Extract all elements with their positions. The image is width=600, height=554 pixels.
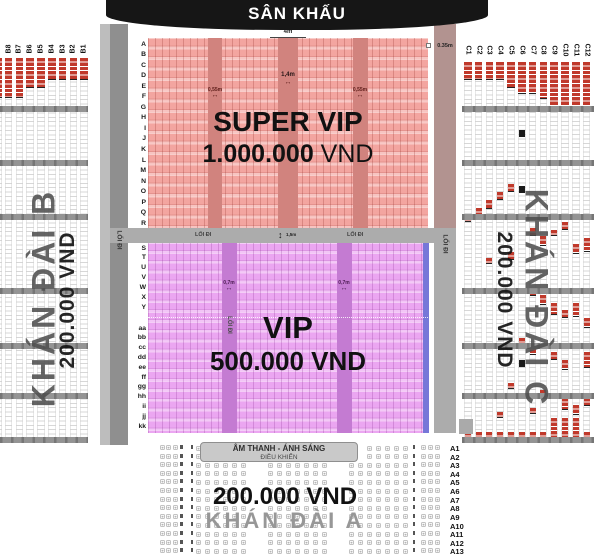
seat xyxy=(160,531,165,536)
seat xyxy=(205,471,210,476)
vip-row-label: Y xyxy=(130,304,146,312)
seat xyxy=(428,514,433,519)
seat xyxy=(421,505,426,510)
stand-seat-column xyxy=(475,62,483,443)
row-number-mark xyxy=(413,454,416,458)
seat xyxy=(367,549,372,554)
sold-seat-mark xyxy=(573,303,579,317)
seat xyxy=(322,463,327,468)
vip-row-label: jj xyxy=(130,413,146,421)
seat xyxy=(286,540,291,545)
svip-row-label: C xyxy=(130,62,146,70)
dim-right-square xyxy=(426,43,431,48)
seat xyxy=(232,549,237,554)
seat xyxy=(376,454,381,459)
row-number-mark xyxy=(191,471,194,475)
seat xyxy=(421,540,426,545)
seat xyxy=(166,454,171,459)
stand-column-label: C5 xyxy=(508,46,515,55)
stand-walkway-bar xyxy=(0,437,88,443)
vip-row-label: V xyxy=(130,274,146,282)
seat xyxy=(394,540,399,545)
seat xyxy=(166,548,171,553)
stand-seat-column xyxy=(5,58,13,443)
seat xyxy=(268,549,273,554)
seat xyxy=(349,549,354,554)
stand-walkway-bar xyxy=(0,106,88,112)
width-arrow-icon: ↔ xyxy=(329,286,359,292)
seat xyxy=(173,454,178,459)
seat xyxy=(394,480,399,485)
super-vip-price-currency: VND xyxy=(314,140,374,168)
seat xyxy=(421,445,426,450)
seat xyxy=(173,471,178,476)
seat xyxy=(367,463,372,468)
sold-seat-mark xyxy=(486,200,492,209)
seat xyxy=(367,446,372,451)
stand-column-label: C8 xyxy=(540,46,547,55)
seat xyxy=(313,540,318,545)
seat xyxy=(428,540,433,545)
sold-seat-mark xyxy=(584,238,590,252)
seat xyxy=(428,445,433,450)
seat xyxy=(313,463,318,468)
seat xyxy=(421,514,426,519)
walkway-label-right: LỐI ĐI xyxy=(347,232,363,238)
row-number-mark xyxy=(413,462,416,466)
svip-row-label: L xyxy=(130,157,146,165)
seat xyxy=(160,522,165,527)
seat xyxy=(173,497,178,502)
stand-c-price: 200.000 VND xyxy=(492,231,516,368)
vip-price: 500.000 VND xyxy=(148,346,428,377)
booth-subtitle: ĐIỀU KHIỂN xyxy=(201,454,357,461)
seat xyxy=(428,531,433,536)
seat xyxy=(166,505,171,510)
seat xyxy=(173,479,178,484)
seat xyxy=(367,454,372,459)
seat xyxy=(435,531,440,536)
seating-chart: SÂN KHẤU LỐI ĐI LỐI ĐI SUPER VIP 1.000.0… xyxy=(0,0,600,554)
svip-row-label: E xyxy=(130,83,146,91)
seat xyxy=(241,549,246,554)
seat xyxy=(428,479,433,484)
seat xyxy=(295,463,300,468)
booth-title: ÂM THANH - ÁNH SÁNG xyxy=(201,444,357,454)
stand-c-name: KHÁN ĐÀI C xyxy=(518,189,555,407)
sold-seats-block xyxy=(550,62,558,107)
seat xyxy=(214,463,219,468)
seat xyxy=(268,540,273,545)
seat xyxy=(223,471,228,476)
seat xyxy=(173,488,178,493)
stand-column-label: C2 xyxy=(475,46,482,55)
sold-seat-mark xyxy=(584,398,590,406)
row-number-mark xyxy=(413,522,416,526)
row-number-mark xyxy=(191,548,194,552)
seat xyxy=(358,540,363,545)
width-arrow-icon: ↔ xyxy=(214,286,244,292)
seat xyxy=(403,446,408,451)
seat xyxy=(304,471,309,476)
super-vip-price-amount: 1.000.000 xyxy=(203,140,314,168)
row-number-mark xyxy=(180,462,183,466)
seat xyxy=(160,454,165,459)
width-arrow-icon: ↔ xyxy=(200,93,230,99)
vip-row-label: dd xyxy=(130,354,146,362)
vip-row-label: ff xyxy=(130,374,146,382)
vip-row-label: X xyxy=(130,294,146,302)
seat xyxy=(403,463,408,468)
seat xyxy=(421,548,426,553)
super-vip-title: SUPER VIP xyxy=(148,106,428,138)
sold-seat-mark xyxy=(508,383,514,389)
seat xyxy=(241,540,246,545)
stand-seat-column xyxy=(583,62,591,443)
seat xyxy=(428,497,433,502)
svip-row-label: N xyxy=(130,178,146,186)
seat xyxy=(403,489,408,494)
seat xyxy=(166,522,171,527)
vip-row-label: kk xyxy=(130,423,146,431)
seat xyxy=(304,463,309,468)
seat xyxy=(196,549,201,554)
seat xyxy=(435,497,440,502)
vip-row-label: U xyxy=(130,264,146,272)
seat xyxy=(214,549,219,554)
seat xyxy=(232,540,237,545)
sold-seats-block xyxy=(475,62,483,80)
seat xyxy=(304,540,309,545)
sold-seat-mark xyxy=(562,360,568,370)
seat xyxy=(241,471,246,476)
sold-seat-mark xyxy=(562,398,568,410)
stand-seat-column xyxy=(0,58,2,443)
seat xyxy=(376,446,381,451)
blocked-seat-mark xyxy=(519,130,525,137)
seat xyxy=(428,548,433,553)
seat xyxy=(277,463,282,468)
dim-stage-gap-line xyxy=(270,37,306,38)
stand-seat-column xyxy=(16,58,24,443)
left-walkway-label: LỐI ĐI xyxy=(116,230,123,249)
seat xyxy=(358,471,363,476)
seat xyxy=(173,462,178,467)
stand-column-label: C7 xyxy=(529,46,536,55)
stand-column-label: C10 xyxy=(562,44,569,57)
seat xyxy=(295,471,300,476)
seat xyxy=(385,471,390,476)
seat xyxy=(403,506,408,511)
seat xyxy=(205,540,210,545)
svip-row-label: A xyxy=(130,41,146,49)
stand-walkway-bar xyxy=(0,160,88,166)
vip-row-label: T xyxy=(130,254,146,262)
seat xyxy=(403,454,408,459)
seat xyxy=(403,480,408,485)
seat xyxy=(160,462,165,467)
row-number-mark xyxy=(180,540,183,544)
seat xyxy=(435,540,440,545)
seat xyxy=(421,531,426,536)
seat xyxy=(160,497,165,502)
seat xyxy=(403,471,408,476)
row-number-mark xyxy=(413,505,416,509)
width-arrow-icon: ↔ xyxy=(273,80,303,86)
stage-label: SÂN KHẤU xyxy=(248,4,346,23)
seat xyxy=(286,471,291,476)
vip-row-label: ii xyxy=(130,403,146,411)
row-number-mark xyxy=(191,540,194,544)
seat xyxy=(223,463,228,468)
seat xyxy=(435,514,440,519)
svip-row-label: G xyxy=(130,104,146,112)
sound-light-booth: ÂM THANH - ÁNH SÁNG ĐIỀU KHIỂN xyxy=(200,442,358,462)
row-number-mark xyxy=(413,445,416,449)
seat xyxy=(166,514,171,519)
svip-row-label: H xyxy=(130,114,146,122)
stand-column-label: B3 xyxy=(59,45,66,54)
row-number-mark xyxy=(413,540,416,544)
seat xyxy=(403,514,408,519)
seat xyxy=(394,446,399,451)
dim-aisle-mid: 1,4m xyxy=(273,72,303,78)
stand-walkway-bar xyxy=(462,160,594,166)
sold-seats-block xyxy=(486,62,494,80)
walkway-label-left: LỐI ĐI xyxy=(195,232,211,238)
seat xyxy=(349,471,354,476)
sold-seat-mark xyxy=(508,184,514,192)
seat xyxy=(385,540,390,545)
svip-row-label: M xyxy=(130,167,146,175)
row-number-mark xyxy=(413,471,416,475)
sold-seat-mark xyxy=(573,244,579,254)
row-number-mark xyxy=(413,488,416,492)
stand-a-name: KHÁN ĐÀI A xyxy=(175,508,395,534)
stage: SÂN KHẤU xyxy=(106,0,488,30)
seat xyxy=(173,548,178,553)
seat xyxy=(223,549,228,554)
right-walkway-label: LỐI ĐI xyxy=(442,234,449,253)
stand-column-label: C1 xyxy=(464,46,471,55)
seat xyxy=(435,445,440,450)
seat xyxy=(358,463,363,468)
sold-seats-block xyxy=(507,62,515,88)
dim-right-label: 0.35m xyxy=(433,43,457,49)
stand-column-label: B4 xyxy=(48,45,55,54)
seat xyxy=(196,463,201,468)
svip-row-label: K xyxy=(130,146,146,154)
stand-walkway-bar xyxy=(462,106,594,112)
stand-column-label: B2 xyxy=(70,45,77,54)
seat xyxy=(421,471,426,476)
seat xyxy=(313,549,318,554)
seat xyxy=(160,505,165,510)
seat xyxy=(403,497,408,502)
stand-column-label: B7 xyxy=(16,45,23,54)
stand-seat-column xyxy=(80,58,88,443)
seat xyxy=(223,540,228,545)
seat xyxy=(394,471,399,476)
seat xyxy=(394,497,399,502)
seat xyxy=(435,548,440,553)
seat xyxy=(166,445,171,450)
svip-row-label: D xyxy=(130,72,146,80)
seat xyxy=(435,505,440,510)
seat xyxy=(385,446,390,451)
stand-column-label: C6 xyxy=(518,46,525,55)
seat xyxy=(435,454,440,459)
sold-seats-block xyxy=(529,62,537,94)
center-walkway: LỐI ĐI LỐI ĐI ↕ 1,5m xyxy=(110,228,456,243)
seat xyxy=(277,471,282,476)
sold-seat-mark xyxy=(584,318,590,328)
seat xyxy=(403,540,408,545)
right-walkway xyxy=(434,228,456,433)
sold-seats-block xyxy=(583,62,591,107)
row-number-mark xyxy=(180,497,183,501)
stand-seat-column xyxy=(561,62,569,443)
sold-seats-block xyxy=(518,62,526,94)
svip-row-label: I xyxy=(130,125,146,133)
vip-title: VIP xyxy=(148,310,428,346)
seat xyxy=(166,471,171,476)
row-number-mark xyxy=(413,479,416,483)
width-arrow-icon: ↔ xyxy=(345,93,375,99)
seat xyxy=(367,471,372,476)
vip-row-label: S xyxy=(130,245,146,253)
sold-seats-block xyxy=(80,58,88,80)
seat xyxy=(435,462,440,467)
walkway-dim: 1,5m xyxy=(286,232,296,237)
seat xyxy=(403,523,408,528)
sold-seat-mark xyxy=(573,405,579,415)
seat xyxy=(394,549,399,554)
seat xyxy=(385,454,390,459)
seat xyxy=(421,479,426,484)
seat xyxy=(421,454,426,459)
seat xyxy=(435,488,440,493)
seat xyxy=(268,463,273,468)
stand-a-row-label: A13 xyxy=(450,547,474,554)
seat xyxy=(214,471,219,476)
seat xyxy=(428,488,433,493)
stand-a-price: 200.000 VND xyxy=(185,483,385,511)
seat xyxy=(358,549,363,554)
vip-row-label: gg xyxy=(130,383,146,391)
seat xyxy=(428,522,433,527)
seat xyxy=(160,548,165,553)
stand-column-label: B1 xyxy=(81,45,88,54)
seat xyxy=(173,540,178,545)
seat xyxy=(385,497,390,502)
row-number-mark xyxy=(413,514,416,518)
seat xyxy=(322,471,327,476)
stand-walkway-bar xyxy=(462,437,594,443)
seat xyxy=(232,463,237,468)
seat xyxy=(205,463,210,468)
row-number-mark xyxy=(180,454,183,458)
vip-row-label: bb xyxy=(130,334,146,342)
seat xyxy=(349,463,354,468)
row-number-mark xyxy=(180,445,183,449)
seat xyxy=(403,532,408,537)
seat xyxy=(196,471,201,476)
seat xyxy=(286,549,291,554)
seat xyxy=(304,549,309,554)
seat xyxy=(349,540,354,545)
stand-column-label: B8 xyxy=(5,45,12,54)
sold-seats-block xyxy=(561,62,569,107)
sold-seats-bottom-tall xyxy=(562,418,568,439)
sold-seat-mark xyxy=(562,310,568,318)
left-walkway-outer xyxy=(100,24,110,445)
svip-row-label: F xyxy=(130,93,146,101)
seat xyxy=(367,540,372,545)
sold-seat-mark xyxy=(562,222,568,230)
stand-column-label: C11 xyxy=(572,44,579,56)
seat xyxy=(166,462,171,467)
seat xyxy=(160,471,165,476)
seat xyxy=(421,462,426,467)
seat xyxy=(214,540,219,545)
stand-column-label: C9 xyxy=(551,46,558,55)
seat xyxy=(428,454,433,459)
seat xyxy=(286,463,291,468)
sold-seats-block xyxy=(464,62,472,80)
right-walkway-top xyxy=(434,24,456,228)
seat xyxy=(435,471,440,476)
seat xyxy=(295,549,300,554)
vip-row-label: aa xyxy=(130,325,146,333)
sold-seat-mark xyxy=(530,408,536,414)
vip-row-label: W xyxy=(130,284,146,292)
svip-row-label: R xyxy=(130,220,146,228)
svip-row-label: J xyxy=(130,135,146,143)
stand-column-label: C4 xyxy=(497,46,504,55)
sold-seat-mark xyxy=(584,352,590,368)
seat xyxy=(166,479,171,484)
row-number-mark xyxy=(413,548,416,552)
seat xyxy=(205,549,210,554)
seat xyxy=(421,488,426,493)
seat xyxy=(394,454,399,459)
seat xyxy=(385,549,390,554)
seat xyxy=(166,497,171,502)
seat xyxy=(160,514,165,519)
sold-seats-block xyxy=(70,58,78,80)
seat xyxy=(160,488,165,493)
stand-column-label: C3 xyxy=(486,46,493,55)
seat xyxy=(322,540,327,545)
height-arrow-icon: ↕ xyxy=(278,227,283,243)
seat xyxy=(277,540,282,545)
stand-seat-column xyxy=(464,62,472,443)
seat xyxy=(428,462,433,467)
seat xyxy=(376,471,381,476)
sold-seats-block xyxy=(59,58,67,80)
sold-seats-block xyxy=(48,58,56,80)
seat xyxy=(421,522,426,527)
stand-c-corner-block xyxy=(459,419,473,434)
sold-seats-block xyxy=(37,58,45,88)
seat xyxy=(421,497,426,502)
stand-column-label: C12 xyxy=(583,44,590,57)
seat xyxy=(428,471,433,476)
seat xyxy=(268,471,273,476)
seat xyxy=(232,471,237,476)
sold-seat-mark xyxy=(497,192,503,200)
